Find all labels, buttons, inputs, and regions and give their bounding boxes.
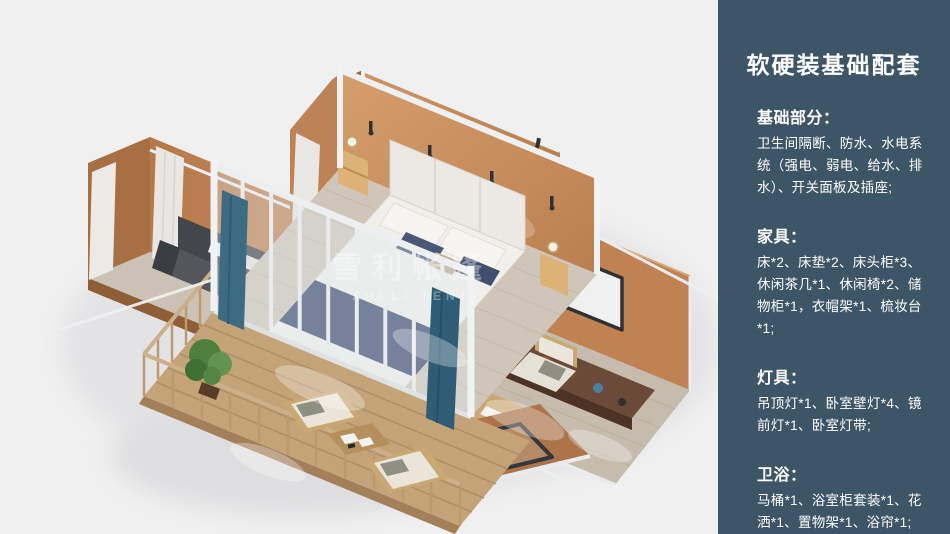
section-body: 卫生间隔断、防水、水电系统（强电、弱电、给水、排水）、开关面板及插座;: [757, 133, 935, 199]
section-body: 床*2、床垫*2、床头柜*3、休闲茶几*1、休闲椅*2、储物柜*1，衣帽架*1、…: [757, 252, 935, 340]
section-furniture: 家具： 床*2、床垫*2、床头柜*3、休闲茶几*1、休闲椅*2、储物柜*1，衣帽…: [757, 223, 935, 340]
panel-title: 软硬装基础配套: [733, 46, 935, 80]
section-body: 马桶*1、浴室柜套装*1、花洒*1、置物架*1、浴帘*1;: [757, 490, 935, 534]
floorplan-render: 雪利帐篷 XUELI TENT: [0, 0, 718, 534]
section-heading: 基础部分：: [757, 104, 935, 128]
section-heading: 家具：: [757, 223, 935, 247]
section-body: 吊顶灯*1、卧室壁灯*4、镜前灯*1、卧室灯带;: [757, 393, 935, 437]
watermark: 雪利帐篷 XUELI TENT: [332, 252, 492, 303]
watermark-en: XUELI TENT: [352, 289, 472, 303]
slide: 雪利帐篷 XUELI TENT 软硬装基础配套 基础部分： 卫生间隔断、防水、水…: [0, 0, 950, 534]
spec-panel: 软硬装基础配套 基础部分： 卫生间隔断、防水、水电系统（强电、弱电、给水、排水）…: [718, 0, 950, 534]
section-bathroom: 卫浴： 马桶*1、浴室柜套装*1、花洒*1、置物架*1、浴帘*1;: [757, 461, 935, 534]
section-heading: 卫浴：: [757, 461, 935, 485]
section-basics: 基础部分： 卫生间隔断、防水、水电系统（强电、弱电、给水、排水）、开关面板及插座…: [757, 104, 935, 199]
watermark-cn: 雪利帐篷: [332, 252, 492, 285]
section-heading: 灯具：: [757, 364, 935, 388]
isometric-house-illustration: 雪利帐篷 XUELI TENT: [0, 0, 718, 534]
section-lighting: 灯具： 吊顶灯*1、卧室壁灯*4、镜前灯*1、卧室灯带;: [757, 364, 935, 437]
